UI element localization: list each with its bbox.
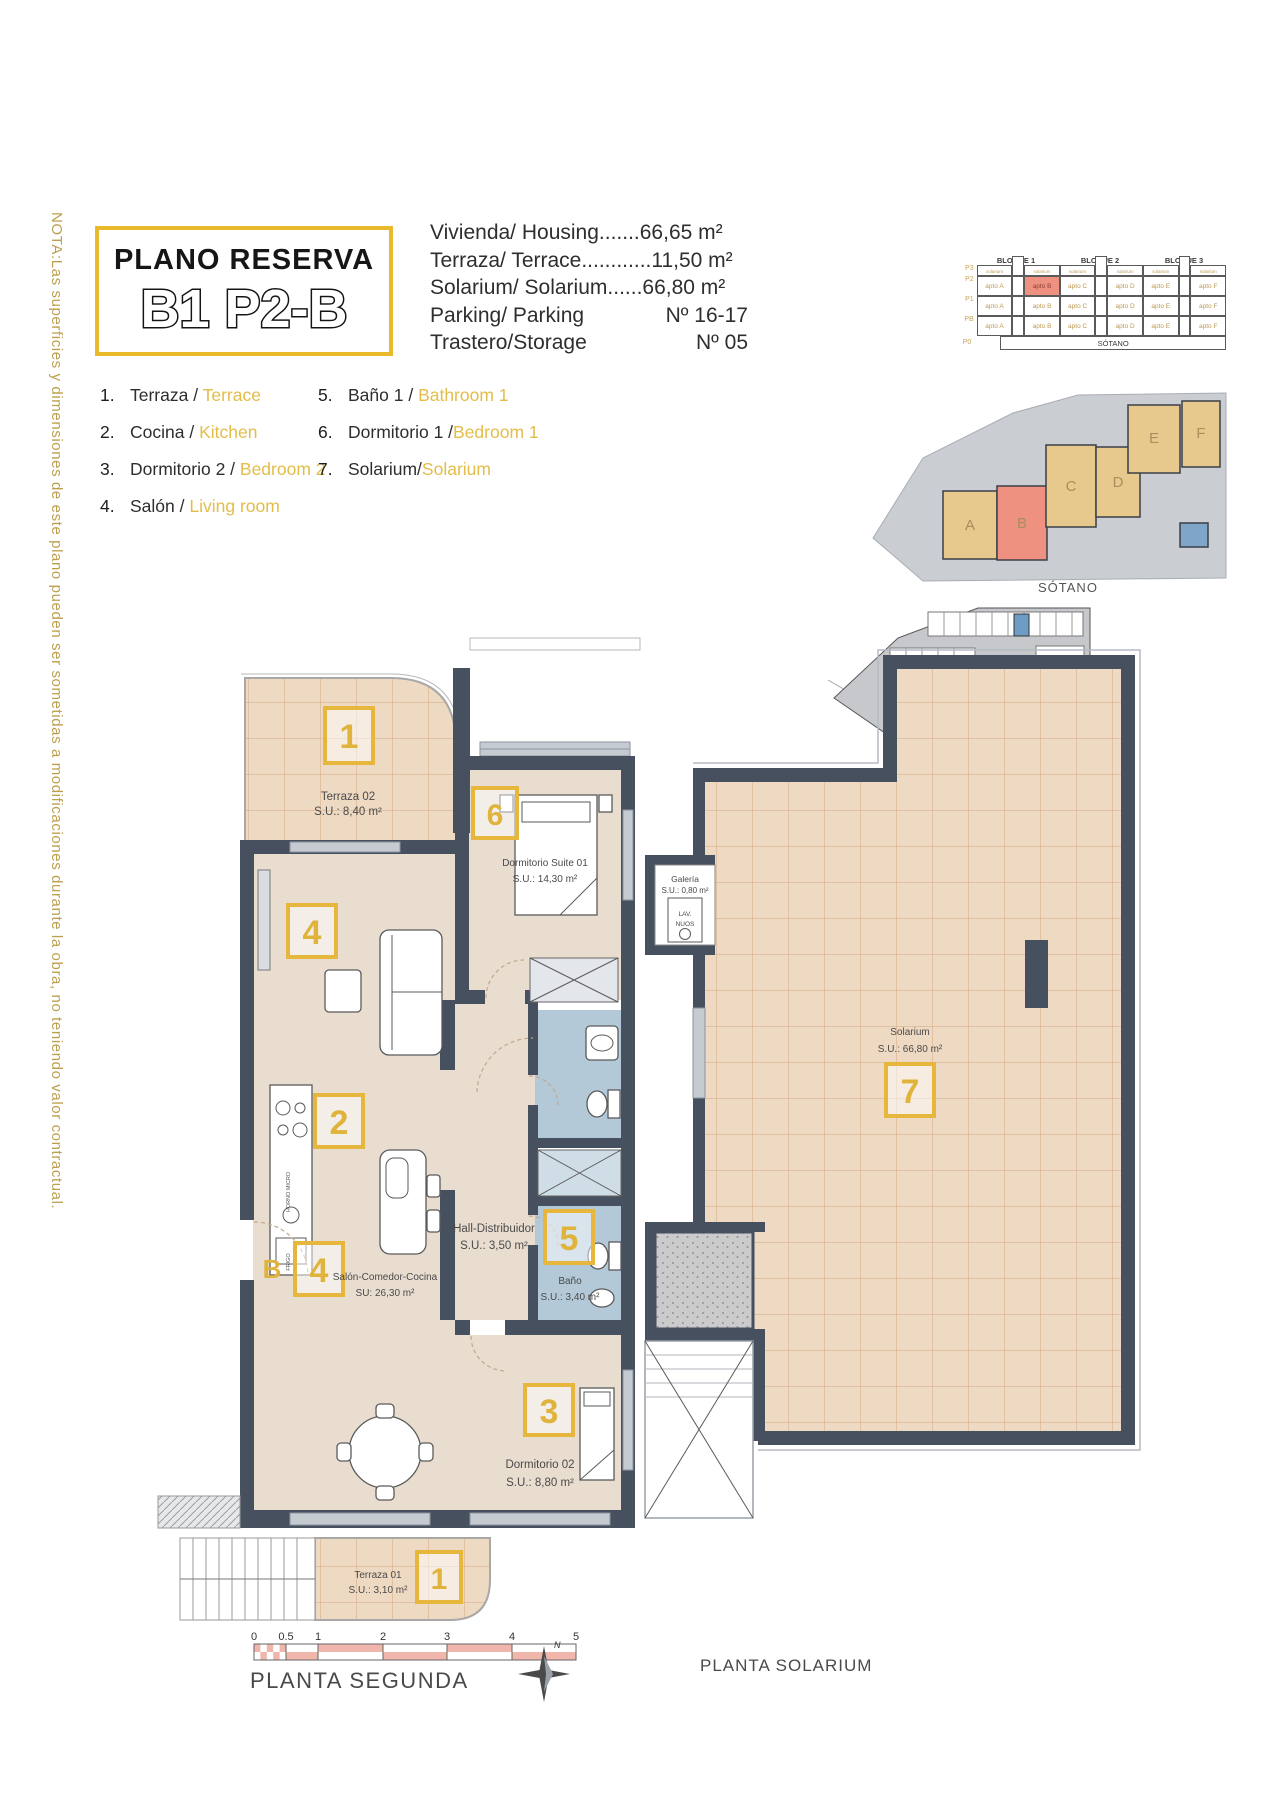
spec-solarium: Solarium/ Solarium......66,80 m²: [430, 274, 748, 302]
badge-dorm02: 3: [525, 1385, 573, 1435]
surface-specs: Vivienda/ Housing.......66,65 m² Terraza…: [430, 219, 748, 357]
legend-item-4: 4.Salón / Living room: [100, 496, 326, 533]
selected-apartment-cell: apto B: [1024, 276, 1060, 296]
stair-tower: [1179, 256, 1191, 276]
svg-text:D: D: [1113, 474, 1124, 491]
svg-text:S.U.: 0,80 m²: S.U.: 0,80 m²: [661, 886, 708, 895]
legend-item-6: 6.Dormitorio 1 /Bedroom 1: [318, 422, 539, 459]
label-terraza01: Terraza 01: [354, 1570, 402, 1581]
label-bano: Baño: [558, 1276, 582, 1287]
patio-skylight: [655, 1232, 753, 1329]
caption-planta-segunda: PLANTA SEGUNDA: [250, 1668, 469, 1694]
svg-text:4: 4: [303, 914, 322, 952]
svg-text:2: 2: [380, 1631, 386, 1643]
floor-row-pb: PB apto Aapto B apto Capto D apto Eapto …: [948, 316, 1226, 336]
label-terraza02: Terraza 02: [321, 791, 375, 803]
svg-text:S.U.: 66,80 m²: S.U.: 66,80 m²: [878, 1044, 943, 1055]
stair-tower: [1012, 256, 1024, 276]
badge-terraza01: 1: [417, 1552, 461, 1602]
label-suite: Dormitorio Suite 01: [502, 858, 588, 869]
svg-text:S.U.: 3,40 m²: S.U.: 3,40 m²: [541, 1292, 601, 1303]
svg-text:S.U.: 3,10 m²: S.U.: 3,10 m²: [349, 1585, 409, 1596]
plan-code-text: B1 P2-B: [140, 279, 347, 339]
floor-row-basement: P0 SÓTANO: [948, 336, 1226, 350]
svg-text:S.U.: 8,40 m²: S.U.: 8,40 m²: [314, 806, 382, 818]
svg-text:Galería: Galería: [671, 874, 699, 884]
label-salon: Salón-Comedor-Cocina: [333, 1272, 438, 1283]
room-terraza-01: [315, 1538, 490, 1620]
washer-label: LAV.: [678, 911, 691, 918]
sotano-title: SÓTANO: [1038, 580, 1098, 595]
svg-text:6: 6: [487, 799, 504, 832]
shower: [538, 1150, 621, 1196]
badge-salon-top: 4: [288, 905, 336, 957]
spec-storage: Trastero/StorageNº 05: [430, 329, 748, 357]
stair-tower: [1095, 256, 1107, 276]
suite-side-window: [623, 810, 633, 900]
badge-solarium: 7: [886, 1064, 934, 1116]
apartment-plan: HORNO MICRO FRIGO: [158, 638, 640, 1620]
floor-row-p1: P1 apto Aapto B apto Capto D apto Eapto …: [948, 296, 1226, 316]
compass-n: N: [554, 1640, 561, 1650]
legend-item-3: 3.Dormitorio 2 / Bedroom 2: [100, 459, 326, 496]
svg-text:7: 7: [901, 1073, 920, 1111]
svg-text:SU: 26,30 m²: SU: 26,30 m²: [356, 1288, 416, 1299]
svg-text:NUOS: NUOS: [676, 921, 695, 928]
oven-label: HORNO MICRO: [286, 1171, 292, 1212]
south-window-1: [290, 1513, 430, 1525]
floor-row-p2: P2 apto Aapto B apto Capto D apto Eapto …: [948, 276, 1226, 296]
floor-plans: HORNO MICRO FRIGO: [140, 630, 1240, 1640]
badge-cocina: 2: [315, 1095, 363, 1147]
svg-text:0: 0: [251, 1631, 257, 1643]
hall-floor: [455, 1000, 535, 1320]
svg-text:5: 5: [560, 1220, 579, 1258]
dorm02-window: [623, 1370, 633, 1470]
spec-terrace: Terraza/ Terrace............11,50 m²: [430, 247, 748, 275]
title-box: PLANO RESERVA B1 P2-B: [95, 226, 393, 356]
badge-suite: 6: [473, 788, 517, 838]
legend-item-7: 7.Solarium/Solarium: [318, 459, 539, 496]
compass-star: [518, 1646, 570, 1702]
pool: [1180, 523, 1208, 547]
sofa: [380, 930, 442, 1055]
label-dorm02: Dormitorio 02: [505, 1459, 574, 1471]
legend-column-1: 1.Terraza / Terrace 2.Cocina / Kitchen 3…: [100, 385, 326, 533]
svg-text:F: F: [1196, 425, 1205, 442]
svg-text:1: 1: [431, 1563, 448, 1596]
solarium-window: [693, 1008, 705, 1098]
fridge-label: FRIGO: [286, 1253, 292, 1271]
label-solarium: Solarium: [890, 1027, 929, 1038]
suite-closet: [530, 958, 618, 1002]
solarium-plan: Galería S.U.: 0,80 m² LAV. NUOS Solarium…: [645, 650, 1140, 1518]
entrance-letter: B: [263, 1254, 282, 1284]
svg-text:0.5: 0.5: [278, 1631, 293, 1643]
svg-text:B: B: [1017, 515, 1027, 532]
core-stairwell: [645, 1341, 753, 1518]
living-terrace-door: [290, 842, 400, 852]
legend-item-1: 1.Terraza / Terrace: [100, 385, 326, 422]
spec-parking: Parking/ ParkingNº 16-17: [430, 302, 748, 330]
plan-code: B1 P2-B: [113, 277, 375, 339]
spec-housing: Vivienda/ Housing.......66,65 m²: [430, 219, 748, 247]
svg-text:A: A: [965, 517, 975, 534]
svg-text:C: C: [1066, 478, 1077, 495]
badge-bano: 5: [545, 1211, 593, 1263]
svg-text:S.U.: 14,30 m²: S.U.: 14,30 m²: [513, 874, 578, 885]
side-note: NOTA:Las superficies y dimensiones de es…: [48, 212, 65, 1332]
svg-text:4: 4: [310, 1252, 329, 1290]
block-floor-table: BLOQUE 1 BLOQUE 2 BLOQUE 3 P3 solariumso…: [948, 256, 1226, 350]
entry-landing: [158, 1496, 240, 1528]
legend-column-2: 5.Baño 1 / Bathroom 1 6.Dormitorio 1 /Be…: [318, 385, 539, 496]
north-parapet: [470, 638, 640, 650]
svg-text:3: 3: [540, 1393, 559, 1431]
badge-salon-bottom: 4: [295, 1243, 343, 1295]
dorm02-bed: [580, 1388, 614, 1480]
svg-text:E: E: [1149, 430, 1159, 447]
floor-row-solarium: P3 solariumsolarium solariumsolarium sol…: [948, 265, 1226, 276]
badge-terraza02: 1: [325, 708, 373, 763]
svg-text:2: 2: [330, 1104, 349, 1142]
page-title: PLANO RESERVA: [114, 244, 374, 277]
south-window-2: [470, 1513, 610, 1525]
label-hall: Hall-Distribuidor: [453, 1223, 535, 1235]
exterior-stairs: [180, 1538, 315, 1620]
svg-text:1: 1: [315, 1631, 321, 1643]
svg-text:1: 1: [340, 718, 359, 756]
svg-text:S.U.: 8,80 m²: S.U.: 8,80 m²: [506, 1477, 574, 1489]
galeria: Galería S.U.: 0,80 m² LAV. NUOS: [655, 865, 715, 945]
legend-item-5: 5.Baño 1 / Bathroom 1: [318, 385, 539, 422]
caption-planta-solarium: PLANTA SOLARIUM: [700, 1656, 872, 1676]
tv-unit: [258, 870, 270, 970]
svg-text:3: 3: [444, 1631, 450, 1643]
site-plan: A B C D E F: [828, 383, 1233, 588]
floor-plan-sheet: NOTA:Las superficies y dimensiones de es…: [0, 0, 1280, 1813]
compass-rose: N: [512, 1636, 576, 1708]
coffee-table: [325, 970, 361, 1012]
legend-item-2: 2.Cocina / Kitchen: [100, 422, 326, 459]
svg-text:S.U.: 3,50 m²: S.U.: 3,50 m²: [460, 1240, 528, 1252]
